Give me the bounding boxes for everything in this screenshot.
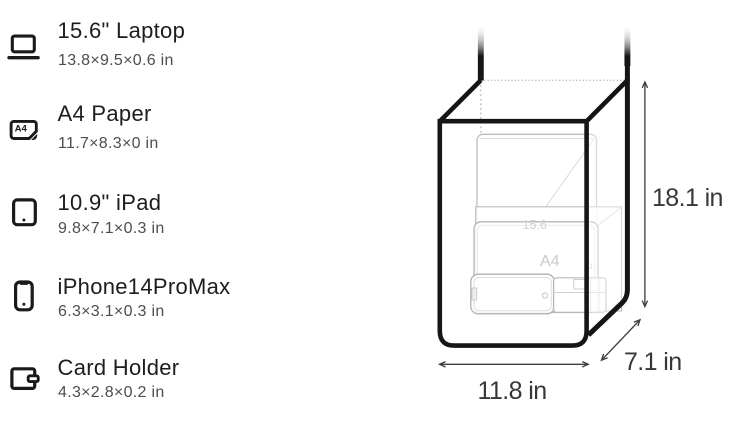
svg-text:A4: A4 [540,253,560,270]
svg-text:15.6: 15.6 [523,218,547,232]
svg-text:A4: A4 [15,123,28,134]
